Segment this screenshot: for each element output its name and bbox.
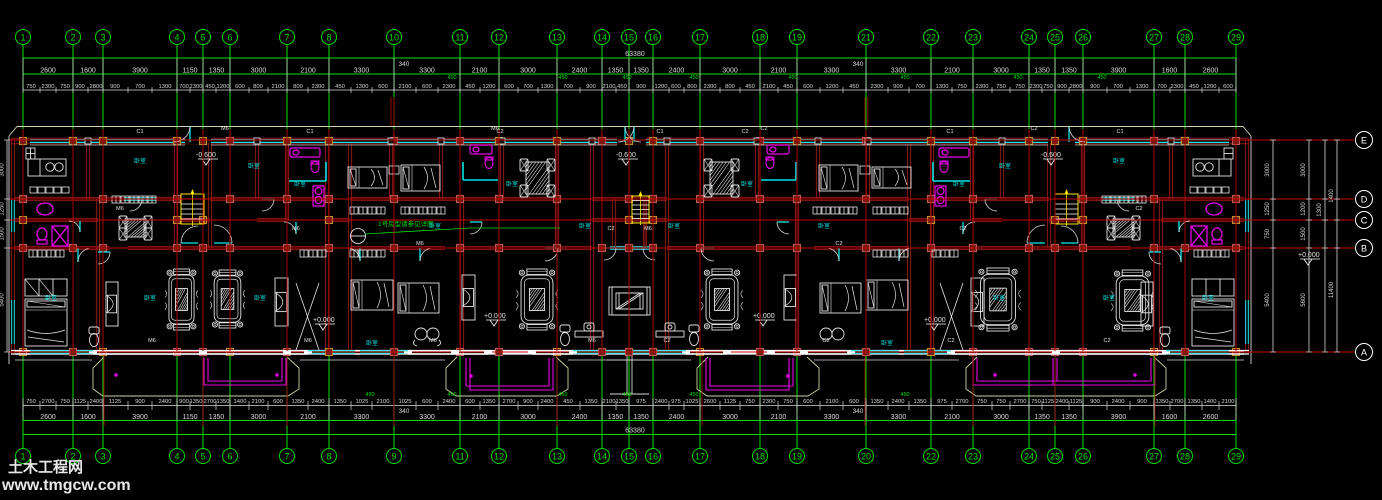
svg-text:750: 750 bbox=[996, 84, 1006, 90]
svg-text:1350: 1350 bbox=[292, 399, 305, 405]
svg-text:750: 750 bbox=[60, 84, 70, 90]
svg-text:600: 600 bbox=[422, 84, 432, 90]
svg-text:2400: 2400 bbox=[669, 68, 685, 75]
svg-text:450: 450 bbox=[622, 75, 631, 81]
svg-text:900: 900 bbox=[179, 399, 189, 405]
svg-text:1350: 1350 bbox=[585, 399, 598, 405]
svg-text:卧室: 卧室 bbox=[1113, 157, 1125, 165]
svg-text:C2: C2 bbox=[1135, 206, 1142, 212]
svg-text:1350: 1350 bbox=[217, 399, 230, 405]
svg-text:450: 450 bbox=[900, 75, 909, 81]
svg-text:900: 900 bbox=[75, 84, 85, 90]
svg-text:24: 24 bbox=[1024, 452, 1034, 462]
svg-text:3300: 3300 bbox=[891, 68, 907, 75]
svg-text:1: 1 bbox=[20, 33, 25, 43]
svg-text:5400: 5400 bbox=[0, 293, 6, 307]
svg-text:2100: 2100 bbox=[300, 414, 316, 421]
svg-text:600: 600 bbox=[273, 399, 283, 405]
svg-text:1200: 1200 bbox=[1204, 84, 1217, 90]
svg-text:1600: 1600 bbox=[80, 68, 96, 75]
svg-text:600: 600 bbox=[378, 84, 388, 90]
svg-text:2800: 2800 bbox=[90, 84, 103, 90]
svg-text:1125: 1125 bbox=[74, 399, 86, 405]
svg-text:C2: C2 bbox=[1103, 338, 1110, 344]
svg-text:600: 600 bbox=[504, 84, 514, 90]
svg-text:C1: C1 bbox=[1116, 129, 1123, 135]
svg-text:2100: 2100 bbox=[826, 399, 839, 405]
svg-text:5400: 5400 bbox=[1265, 293, 1271, 307]
svg-text:20: 20 bbox=[861, 452, 871, 462]
svg-text:15: 15 bbox=[624, 33, 634, 43]
svg-text:1350: 1350 bbox=[1156, 399, 1169, 405]
svg-text:3900: 3900 bbox=[132, 414, 148, 421]
svg-text:1300: 1300 bbox=[159, 84, 172, 90]
svg-text:C1: C1 bbox=[136, 129, 143, 135]
svg-text:2100: 2100 bbox=[399, 84, 412, 90]
svg-text:3000: 3000 bbox=[251, 414, 267, 421]
svg-text:1500: 1500 bbox=[1301, 227, 1307, 241]
svg-text:1200: 1200 bbox=[1301, 202, 1307, 216]
svg-text:2400: 2400 bbox=[90, 399, 103, 405]
svg-text:3300: 3300 bbox=[354, 414, 370, 421]
svg-text:C2: C2 bbox=[741, 129, 748, 135]
svg-text:900: 900 bbox=[1057, 84, 1067, 90]
svg-text:1150: 1150 bbox=[182, 68, 197, 75]
svg-text:28: 28 bbox=[1180, 452, 1190, 462]
svg-text:2400: 2400 bbox=[159, 399, 172, 405]
svg-text:600: 600 bbox=[803, 84, 813, 90]
svg-text:3000: 3000 bbox=[1301, 163, 1307, 177]
svg-text:6: 6 bbox=[227, 33, 232, 43]
svg-text:1125: 1125 bbox=[109, 399, 121, 405]
svg-text:1025: 1025 bbox=[399, 399, 412, 405]
svg-text:13: 13 bbox=[552, 33, 562, 43]
svg-text:900: 900 bbox=[110, 84, 120, 90]
svg-text:卧室: 卧室 bbox=[429, 222, 441, 230]
svg-text:2100: 2100 bbox=[377, 399, 390, 405]
svg-text:900: 900 bbox=[893, 84, 903, 90]
svg-text:450: 450 bbox=[335, 84, 345, 90]
svg-text:2300: 2300 bbox=[1030, 84, 1043, 90]
svg-text:C2: C2 bbox=[1030, 126, 1037, 132]
svg-text:卧室: 卧室 bbox=[579, 222, 591, 230]
svg-text:C2: C2 bbox=[835, 241, 842, 247]
svg-text:2700: 2700 bbox=[42, 399, 55, 405]
svg-text:2400: 2400 bbox=[892, 399, 905, 405]
svg-text:1025: 1025 bbox=[356, 399, 369, 405]
svg-text:450: 450 bbox=[849, 84, 859, 90]
svg-text:600: 600 bbox=[235, 84, 245, 90]
svg-text:700: 700 bbox=[1113, 84, 1123, 90]
svg-text:1400: 1400 bbox=[234, 399, 247, 405]
svg-text:1125: 1125 bbox=[1070, 399, 1082, 405]
svg-text:3: 3 bbox=[100, 33, 105, 43]
svg-text:2300: 2300 bbox=[704, 84, 717, 90]
svg-text:700: 700 bbox=[1157, 84, 1167, 90]
svg-text:2400: 2400 bbox=[572, 68, 588, 75]
svg-text:1300: 1300 bbox=[936, 84, 949, 90]
svg-text:卧室: 卧室 bbox=[1202, 294, 1214, 302]
svg-text:2400: 2400 bbox=[1112, 399, 1125, 405]
svg-text:450: 450 bbox=[617, 84, 627, 90]
svg-text:+0.000: +0.000 bbox=[484, 313, 506, 320]
svg-text:26: 26 bbox=[1078, 452, 1088, 462]
svg-text:11400: 11400 bbox=[1329, 281, 1335, 298]
svg-text:卧室: 卧室 bbox=[818, 222, 830, 230]
svg-text:卧室: 卧室 bbox=[668, 222, 680, 230]
svg-text:23: 23 bbox=[968, 33, 978, 43]
svg-text:3900: 3900 bbox=[132, 68, 148, 75]
svg-text:2700: 2700 bbox=[956, 399, 969, 405]
svg-text:800: 800 bbox=[725, 84, 735, 90]
svg-text:8: 8 bbox=[326, 452, 331, 462]
svg-text:2100: 2100 bbox=[472, 414, 488, 421]
svg-text:1350: 1350 bbox=[209, 414, 225, 421]
svg-text:4: 4 bbox=[174, 33, 179, 43]
svg-text:1350: 1350 bbox=[616, 399, 629, 405]
svg-text:2300: 2300 bbox=[871, 84, 884, 90]
svg-text:2700: 2700 bbox=[1014, 399, 1027, 405]
svg-text:1600: 1600 bbox=[1162, 68, 1178, 75]
svg-text:22: 22 bbox=[926, 452, 936, 462]
svg-text:17: 17 bbox=[695, 33, 705, 43]
svg-text:3000: 3000 bbox=[722, 68, 738, 75]
svg-text:3300: 3300 bbox=[824, 414, 840, 421]
svg-text:+0.000: +0.000 bbox=[924, 317, 946, 324]
svg-text:900: 900 bbox=[1090, 84, 1100, 90]
svg-text:1125: 1125 bbox=[724, 399, 736, 405]
svg-text:C2: C2 bbox=[496, 129, 503, 135]
svg-text:2100: 2100 bbox=[603, 399, 616, 405]
svg-text:7: 7 bbox=[284, 33, 289, 43]
svg-text:1350: 1350 bbox=[633, 68, 649, 75]
svg-text:3300: 3300 bbox=[354, 68, 370, 75]
svg-text:450: 450 bbox=[788, 75, 797, 81]
svg-text:800: 800 bbox=[293, 84, 303, 90]
svg-text:5: 5 bbox=[200, 452, 205, 462]
svg-text:2100: 2100 bbox=[944, 68, 960, 75]
svg-text:10: 10 bbox=[389, 33, 399, 43]
svg-text:2400: 2400 bbox=[541, 399, 554, 405]
svg-text:600: 600 bbox=[1223, 84, 1233, 90]
svg-text:900: 900 bbox=[1090, 399, 1100, 405]
svg-text:450: 450 bbox=[622, 392, 631, 398]
svg-text:C1: C1 bbox=[946, 129, 953, 135]
svg-text:M6: M6 bbox=[588, 338, 596, 344]
svg-text:450: 450 bbox=[447, 75, 456, 81]
svg-text:M6: M6 bbox=[116, 206, 124, 212]
svg-text:2100: 2100 bbox=[771, 68, 787, 75]
svg-text:700: 700 bbox=[135, 84, 145, 90]
svg-text:2100: 2100 bbox=[252, 399, 265, 405]
svg-text:900: 900 bbox=[135, 399, 145, 405]
svg-text:340: 340 bbox=[853, 408, 864, 415]
svg-text:3000: 3000 bbox=[251, 68, 267, 75]
svg-text:63380: 63380 bbox=[625, 51, 645, 58]
svg-text:28: 28 bbox=[1180, 33, 1190, 43]
svg-text:3000: 3000 bbox=[993, 414, 1009, 421]
svg-text:450: 450 bbox=[558, 392, 567, 398]
svg-text:1350: 1350 bbox=[190, 399, 203, 405]
svg-text:11: 11 bbox=[455, 33, 464, 43]
svg-text:975: 975 bbox=[671, 399, 681, 405]
svg-text:14: 14 bbox=[597, 33, 607, 43]
svg-text:8: 8 bbox=[326, 33, 331, 43]
svg-text:750: 750 bbox=[783, 399, 793, 405]
svg-text:2100: 2100 bbox=[272, 84, 285, 90]
svg-text:1350: 1350 bbox=[483, 399, 496, 405]
svg-text:卧室: 卧室 bbox=[366, 339, 378, 347]
svg-text:2300: 2300 bbox=[443, 84, 456, 90]
svg-text:750: 750 bbox=[745, 399, 755, 405]
svg-text:3300: 3300 bbox=[891, 414, 907, 421]
svg-text:29: 29 bbox=[1231, 452, 1241, 462]
svg-text:D: D bbox=[1361, 195, 1368, 205]
svg-text:2700: 2700 bbox=[1171, 399, 1184, 405]
svg-text:450: 450 bbox=[447, 392, 456, 398]
svg-text:25: 25 bbox=[1050, 452, 1060, 462]
svg-text:卧室: 卧室 bbox=[144, 294, 156, 302]
svg-text:750: 750 bbox=[26, 84, 36, 90]
svg-text:63380: 63380 bbox=[625, 428, 645, 435]
svg-text:2100: 2100 bbox=[944, 414, 960, 421]
svg-text:-0.600: -0.600 bbox=[1041, 152, 1061, 159]
svg-text:750: 750 bbox=[1265, 228, 1271, 239]
svg-text:2800: 2800 bbox=[1070, 84, 1083, 90]
svg-text:13: 13 bbox=[552, 452, 562, 462]
svg-text:1150: 1150 bbox=[182, 414, 197, 421]
svg-text:卧室: 卧室 bbox=[506, 180, 518, 188]
svg-text:750: 750 bbox=[996, 399, 1006, 405]
svg-text:-0.600: -0.600 bbox=[196, 152, 216, 159]
svg-text:卧室: 卧室 bbox=[248, 162, 260, 170]
svg-text:M6: M6 bbox=[644, 226, 652, 232]
svg-text:C: C bbox=[1361, 216, 1368, 226]
svg-text:1350: 1350 bbox=[334, 399, 347, 405]
svg-text:+0.000: +0.000 bbox=[313, 317, 335, 324]
svg-text:18: 18 bbox=[755, 33, 765, 43]
svg-text:+0.000: +0.000 bbox=[1298, 252, 1320, 259]
svg-text:450: 450 bbox=[465, 84, 475, 90]
svg-text:450: 450 bbox=[1013, 75, 1022, 81]
svg-text:900: 900 bbox=[636, 84, 646, 90]
svg-text:2600: 2600 bbox=[40, 68, 56, 75]
svg-text:2400: 2400 bbox=[669, 414, 685, 421]
svg-text:E: E bbox=[1361, 136, 1367, 146]
svg-text:18: 18 bbox=[755, 452, 765, 462]
svg-text:4: 4 bbox=[174, 452, 179, 462]
svg-text:M6: M6 bbox=[221, 126, 229, 132]
svg-text:3000: 3000 bbox=[993, 68, 1009, 75]
svg-text:2300: 2300 bbox=[763, 399, 776, 405]
svg-text:1350: 1350 bbox=[1034, 414, 1050, 421]
svg-text:1350: 1350 bbox=[871, 399, 884, 405]
svg-text:16: 16 bbox=[648, 33, 658, 43]
svg-text:2100: 2100 bbox=[1222, 399, 1235, 405]
svg-text:2300: 2300 bbox=[1171, 84, 1184, 90]
svg-text:2700: 2700 bbox=[204, 399, 217, 405]
svg-text:26: 26 bbox=[1078, 33, 1088, 43]
svg-text:M6: M6 bbox=[416, 241, 424, 247]
svg-text:340: 340 bbox=[399, 408, 410, 415]
svg-text:3000: 3000 bbox=[520, 414, 536, 421]
svg-text:750: 750 bbox=[1015, 84, 1025, 90]
svg-text:M6: M6 bbox=[429, 338, 437, 344]
svg-text:1250: 1250 bbox=[0, 202, 6, 216]
svg-text:750: 750 bbox=[957, 84, 967, 90]
svg-text:2100: 2100 bbox=[771, 414, 787, 421]
svg-text:+0.000: +0.000 bbox=[753, 313, 775, 320]
svg-text:5: 5 bbox=[200, 33, 205, 43]
svg-text:1200: 1200 bbox=[217, 84, 230, 90]
svg-text:M6: M6 bbox=[148, 338, 156, 344]
svg-text:3000: 3000 bbox=[722, 414, 738, 421]
svg-text:2400: 2400 bbox=[443, 399, 456, 405]
svg-text:3300: 3300 bbox=[419, 68, 435, 75]
svg-text:800: 800 bbox=[687, 84, 697, 90]
svg-text:M6: M6 bbox=[304, 338, 312, 344]
svg-text:11: 11 bbox=[455, 452, 464, 462]
svg-text:16: 16 bbox=[648, 452, 658, 462]
svg-text:2600: 2600 bbox=[704, 399, 717, 405]
svg-text:卧室: 卧室 bbox=[999, 162, 1011, 170]
svg-text:M6: M6 bbox=[292, 226, 300, 232]
svg-text:1200: 1200 bbox=[826, 84, 839, 90]
svg-text:2100: 2100 bbox=[300, 68, 316, 75]
svg-text:C2: C2 bbox=[607, 226, 614, 232]
svg-text:3300: 3300 bbox=[419, 414, 435, 421]
svg-text:6: 6 bbox=[227, 452, 232, 462]
svg-text:975: 975 bbox=[636, 399, 646, 405]
svg-text:21: 21 bbox=[861, 33, 871, 43]
svg-text:800: 800 bbox=[253, 84, 263, 90]
svg-text:1350: 1350 bbox=[633, 414, 649, 421]
svg-text:C2: C2 bbox=[663, 338, 670, 344]
svg-text:23: 23 bbox=[968, 452, 978, 462]
svg-text:29: 29 bbox=[1231, 33, 1241, 43]
svg-text:3000: 3000 bbox=[0, 163, 6, 177]
svg-text:1350: 1350 bbox=[608, 68, 624, 75]
svg-text:2700: 2700 bbox=[503, 399, 516, 405]
svg-text:1300: 1300 bbox=[1317, 203, 1323, 217]
svg-text:卧室: 卧室 bbox=[953, 180, 965, 188]
svg-text:450: 450 bbox=[1189, 84, 1199, 90]
svg-text:卧室: 卧室 bbox=[134, 157, 146, 165]
svg-text:450: 450 bbox=[563, 399, 573, 405]
svg-text:750: 750 bbox=[1043, 84, 1053, 90]
svg-text:3: 3 bbox=[100, 452, 105, 462]
svg-text:600: 600 bbox=[422, 399, 432, 405]
svg-text:1200: 1200 bbox=[655, 84, 668, 90]
svg-text:1350: 1350 bbox=[1188, 399, 1201, 405]
svg-text:600: 600 bbox=[465, 399, 475, 405]
svg-text:2400: 2400 bbox=[1056, 399, 1069, 405]
svg-text:1350: 1350 bbox=[914, 399, 927, 405]
svg-text:450: 450 bbox=[783, 84, 793, 90]
svg-text:750: 750 bbox=[26, 399, 36, 405]
svg-text:C2: C2 bbox=[947, 338, 954, 344]
svg-text:12: 12 bbox=[494, 33, 504, 43]
svg-text:900: 900 bbox=[1137, 399, 1147, 405]
svg-text:C2: C2 bbox=[822, 338, 829, 344]
svg-text:3000: 3000 bbox=[1265, 163, 1271, 177]
svg-text:750: 750 bbox=[60, 399, 70, 405]
svg-text:2300: 2300 bbox=[312, 84, 325, 90]
svg-text:450: 450 bbox=[900, 392, 909, 398]
svg-text:2600: 2600 bbox=[40, 414, 56, 421]
svg-text:2400: 2400 bbox=[312, 399, 325, 405]
svg-text:1500: 1500 bbox=[0, 227, 6, 241]
svg-text:卧室: 卧室 bbox=[741, 180, 753, 188]
svg-text:1350: 1350 bbox=[608, 414, 624, 421]
svg-text:1600: 1600 bbox=[1162, 414, 1178, 421]
svg-text:450: 450 bbox=[365, 392, 374, 398]
svg-text:1350: 1350 bbox=[1034, 68, 1050, 75]
svg-text:卧室: 卧室 bbox=[254, 294, 266, 302]
svg-text:1200: 1200 bbox=[483, 84, 496, 90]
svg-text:2100: 2100 bbox=[603, 84, 616, 90]
svg-text:1350: 1350 bbox=[1061, 68, 1077, 75]
svg-text:3900: 3900 bbox=[1111, 414, 1127, 421]
svg-text:2100: 2100 bbox=[763, 84, 776, 90]
svg-text:14: 14 bbox=[597, 452, 607, 462]
svg-text:1300: 1300 bbox=[356, 84, 369, 90]
svg-text:12: 12 bbox=[494, 452, 504, 462]
svg-text:2600: 2600 bbox=[1203, 68, 1219, 75]
svg-text:700: 700 bbox=[915, 84, 925, 90]
svg-text:975: 975 bbox=[937, 399, 947, 405]
svg-text:www.tmgcw.com: www.tmgcw.com bbox=[1, 477, 131, 494]
svg-text:2400: 2400 bbox=[655, 399, 668, 405]
svg-text:15: 15 bbox=[624, 452, 634, 462]
svg-text:450: 450 bbox=[745, 84, 755, 90]
svg-text:1025: 1025 bbox=[686, 399, 699, 405]
svg-text:2400: 2400 bbox=[572, 414, 588, 421]
svg-text:600: 600 bbox=[849, 399, 859, 405]
svg-text:900: 900 bbox=[523, 399, 533, 405]
svg-text:1350: 1350 bbox=[209, 68, 225, 75]
svg-text:A: A bbox=[1361, 348, 1367, 358]
svg-text:1600: 1600 bbox=[80, 414, 96, 421]
svg-text:C1: C1 bbox=[306, 129, 313, 135]
svg-text:24: 24 bbox=[1024, 33, 1034, 43]
svg-text:450: 450 bbox=[558, 75, 567, 81]
svg-text:22: 22 bbox=[926, 33, 936, 43]
svg-text:19: 19 bbox=[792, 452, 802, 462]
svg-text:2600: 2600 bbox=[1203, 414, 1219, 421]
svg-text:600: 600 bbox=[671, 84, 681, 90]
svg-text:450: 450 bbox=[689, 75, 698, 81]
svg-text:卧室: 卧室 bbox=[294, 180, 306, 188]
svg-text:450: 450 bbox=[689, 392, 698, 398]
svg-text:9: 9 bbox=[391, 452, 396, 462]
svg-text:25: 25 bbox=[1050, 33, 1060, 43]
svg-text:3000: 3000 bbox=[520, 68, 536, 75]
svg-text:2300: 2300 bbox=[976, 84, 989, 90]
svg-text:B: B bbox=[1361, 244, 1367, 254]
svg-text:450: 450 bbox=[1097, 75, 1106, 81]
svg-text:700: 700 bbox=[563, 84, 573, 90]
svg-text:C2: C2 bbox=[959, 226, 966, 232]
svg-text:1250: 1250 bbox=[1265, 202, 1271, 216]
svg-text:1350: 1350 bbox=[1061, 414, 1077, 421]
svg-text:C1: C1 bbox=[656, 129, 663, 135]
svg-text:27: 27 bbox=[1149, 33, 1159, 43]
svg-text:700: 700 bbox=[179, 84, 189, 90]
svg-text:450: 450 bbox=[205, 84, 215, 90]
svg-text:1300: 1300 bbox=[1136, 84, 1149, 90]
svg-text:750: 750 bbox=[1031, 399, 1041, 405]
